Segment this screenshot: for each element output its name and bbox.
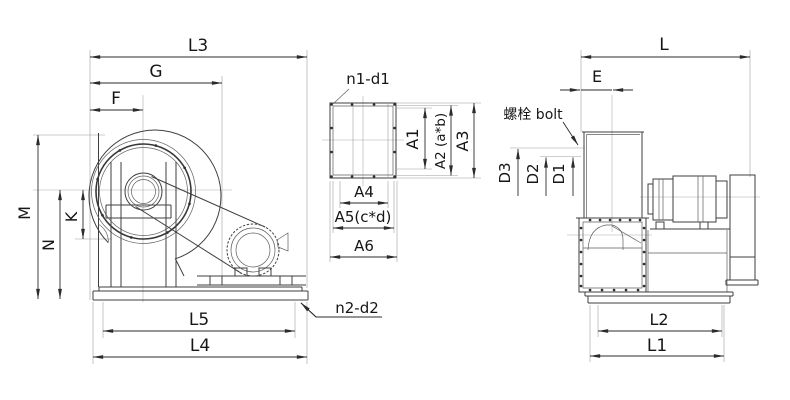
housing-internal-scroll [583,225,642,250]
housing-flange-dots [581,220,644,290]
motor-rib-lines [659,176,703,222]
label-D3: D3 [496,162,514,183]
label-E: E [592,67,602,86]
inlet-bolt-circle [96,144,191,239]
motor-pulley-belt-arc [236,233,270,267]
motor-pulley-rim-inner [231,228,275,272]
label-L2: L2 [649,310,668,329]
shaft-hub-circle-mid [128,176,159,207]
extension-lines-left [33,50,307,364]
scroll-casing-outline [89,130,221,276]
label-D2: D2 [524,163,542,184]
motor-bracket-frame [648,230,727,292]
extension-lines-right [510,50,750,362]
inlet-pedestal [726,175,758,285]
bearing-shelf [106,205,171,218]
shaft-hub-circle-inner [132,180,156,204]
label-A3: A3 [453,130,472,151]
label-K: K [62,211,81,222]
label-L: L [659,35,669,55]
label-A6: A6 [354,237,374,255]
inlet-opening-circle [100,148,188,236]
label-F: F [111,89,121,109]
flange-center-lines [322,96,404,186]
base-frame-left-view [93,287,308,300]
label-A2: A2 (a*b) [433,113,449,169]
belt-guard-edges [136,177,266,273]
label-n1-d1: n1-d1 [346,70,390,88]
label-L5: L5 [189,310,209,330]
motor-body [648,176,727,222]
leader-line-n1-d1 [333,89,349,104]
label-bolt: 螺栓 bolt [503,107,563,123]
leader-arrow-bolt [563,122,578,145]
label-N: N [39,239,58,251]
flange-extension-lines [330,103,481,262]
label-n2-d2: n2-d2 [335,299,379,317]
motor-feet-right-view [650,222,730,229]
fan-drawing-svg: L3 G F M K N L5 L4 n2-d2 n1-d1 A1 A2 (a*… [0,0,790,400]
outlet-flange-view: n1-d1 A1 A2 (a*b) A3 A4 A5(c*d) A6 [322,70,481,262]
left-side-view: L3 G F M K N L5 L4 n2-d2 [15,36,382,364]
right-side-view: L E 螺栓 bolt D3 D2 D1 L2 L1 [496,35,760,362]
technical-drawing-canvas: L3 G F M K N L5 L4 n2-d2 n1-d1 A1 A2 (a*… [0,0,790,400]
inlet-flange-outer-circle [92,140,196,244]
outlet-duct [582,132,644,218]
support-stand-uprights [111,162,176,287]
fan-housing-box [576,218,649,292]
label-L4: L4 [190,336,210,356]
fan-housing-inner [583,222,642,288]
label-A1: A1 [403,128,422,149]
base-frame-right-view [585,292,733,303]
label-G: G [149,62,162,82]
scroll-tongue-curl [98,224,108,243]
label-A5: A5(c*d) [335,208,392,226]
label-D1: D1 [550,163,568,184]
label-L3: L3 [188,36,208,56]
label-L1: L1 [647,336,667,356]
center-lines-right [567,95,760,235]
outlet-duct-inner [587,135,641,219]
motor-slide-rails [197,276,306,285]
label-A4: A4 [354,183,374,201]
flange-bolt-row-lines [353,104,388,177]
label-M: M [15,206,34,220]
